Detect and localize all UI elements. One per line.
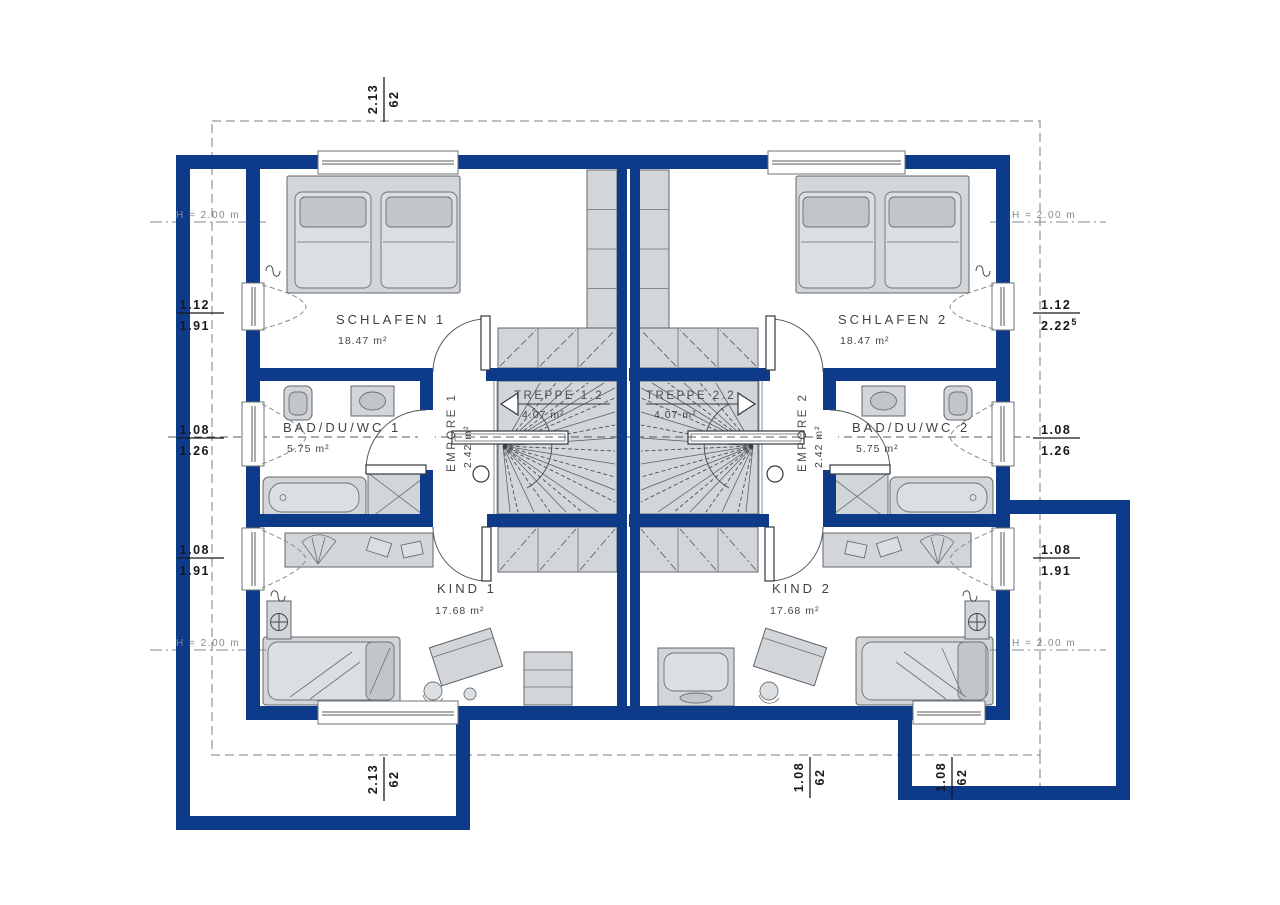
dim-bottom2-b: 62: [813, 769, 827, 786]
room-label-treppe1: TREPPE 1.2: [514, 390, 604, 402]
room-label-bad1: BAD/DU/WC 1: [283, 420, 401, 435]
room-label-bad2: BAD/DU/WC 2: [852, 420, 970, 435]
room-label-treppe2: TREPPE 2.2: [646, 390, 736, 402]
staircase-2: [639, 328, 804, 572]
dim-left3-a: 1.08: [180, 543, 210, 557]
vent-box-1: [267, 601, 291, 639]
dim-bottom1-a: 2.13: [366, 764, 380, 794]
toilet-2: [944, 386, 972, 420]
floor-plan: SCHLAFEN 1 18.47 m² SCHLAFEN 2 18.47 m² …: [0, 0, 1280, 905]
dim-right2-b: 1.26: [1041, 444, 1071, 458]
room-area-treppe1: 4.07 m²: [522, 409, 565, 421]
dim-top-b: 62: [387, 91, 401, 108]
dim-bottom1-b: 62: [387, 771, 401, 788]
double-bed-1: [287, 176, 460, 293]
dim-right2-a: 1.08: [1041, 423, 1071, 437]
door-schlafen2: [766, 316, 823, 383]
terrace-right-wall: [1116, 500, 1130, 800]
room-label-schlafen1: SCHLAFEN 1: [336, 312, 446, 327]
single-bed-2: [856, 637, 993, 705]
desk-2: [753, 628, 826, 703]
dim-left1-a: 1.12: [180, 298, 210, 312]
room-area-schlafen1: 18.47 m²: [338, 335, 387, 347]
sink-2: [862, 386, 905, 416]
desk-1: [423, 628, 503, 703]
height-label-bottom-right: H = 2.00 m: [1012, 638, 1076, 649]
room-area-treppe2: 4.07 m²: [654, 409, 697, 421]
window-kind2-bottom: [913, 701, 985, 724]
doors: [366, 316, 890, 581]
window-schlafen2-top: [768, 151, 905, 174]
bathtub-1: [263, 477, 366, 518]
window-kind1-bottom: [318, 701, 458, 724]
room-area-bad2: 5.75 m²: [856, 443, 899, 455]
party-wall-right: [630, 169, 640, 706]
dim-right3-b: 1.91: [1041, 564, 1071, 578]
sideboard-1: [285, 533, 433, 567]
room-label-empore1: EMPORE 1: [446, 393, 458, 472]
window-kind2-right: [992, 528, 1014, 590]
window-schlafen1-left: [242, 283, 264, 330]
newel-post-2: [767, 466, 783, 482]
sideboard-2: [823, 533, 971, 567]
wardrobe-1: [587, 170, 617, 328]
dim-right3-a: 1.08: [1041, 543, 1071, 557]
room-area-bad1: 5.75 m²: [287, 443, 330, 455]
double-bed-2: [796, 176, 969, 293]
bathtub-2: [890, 477, 993, 518]
newel-post-1: [473, 466, 489, 482]
dim-right1-a: 1.12: [1041, 298, 1071, 312]
staircase-1: [452, 328, 617, 572]
shelf-1: [524, 652, 572, 705]
window-bad2-right: [992, 402, 1014, 466]
terrace-left-bottom: [176, 816, 470, 830]
chair-2: [760, 682, 778, 700]
door-kind2: [765, 512, 823, 581]
room-area-kind1: 17.68 m²: [435, 605, 484, 617]
height-label-bottom-left: H = 2.00 m: [176, 638, 240, 649]
dim-right1-b: 2.225: [1041, 317, 1078, 333]
vent-box-2: [965, 601, 989, 639]
room-area-empore1: 2.42 m²: [462, 425, 474, 468]
room-label-schlafen2: SCHLAFEN 2: [838, 312, 948, 327]
chair-1: [424, 682, 442, 700]
terrace-left-right: [456, 720, 470, 830]
sink-1: [351, 386, 394, 416]
window-bad1-left: [242, 402, 264, 466]
dim-left1-b: 1.91: [180, 319, 210, 333]
crib-2: [658, 648, 734, 706]
single-bed-1: [263, 637, 400, 705]
dim-top-a: 2.13: [366, 84, 380, 114]
dim-left2-a: 1.08: [180, 423, 210, 437]
party-wall-left: [617, 169, 627, 706]
terrace-right-top: [1010, 500, 1130, 514]
room-label-empore2: EMPORE 2: [797, 393, 809, 472]
terrace-left-wall: [176, 155, 190, 830]
toilet-1: [284, 386, 312, 420]
window-schlafen2-right: [992, 283, 1014, 330]
room-label-kind2: KIND 2: [772, 581, 832, 596]
window-kind1-left: [242, 528, 264, 590]
dim-left3-b: 1.91: [180, 564, 210, 578]
dim-bottom3-a: 1.08: [934, 762, 948, 792]
wardrobe-2: [639, 170, 669, 328]
dim-bottom3-b: 62: [955, 769, 969, 786]
terrace-right-bottom: [898, 786, 1130, 800]
room-label-kind1: KIND 1: [437, 581, 497, 596]
room-area-schlafen2: 18.47 m²: [840, 335, 889, 347]
height-label-top-right: H = 2.00 m: [1012, 210, 1076, 221]
room-area-kind2: 17.68 m²: [770, 605, 819, 617]
door-kind1: [433, 512, 491, 581]
window-schlafen1-top: [318, 151, 458, 174]
dim-bottom2-a: 1.08: [792, 762, 806, 792]
dim-left2-b: 1.26: [180, 444, 210, 458]
room-area-empore2: 2.42 m²: [813, 425, 825, 468]
height-label-top-left: H = 2.00 m: [176, 210, 240, 221]
